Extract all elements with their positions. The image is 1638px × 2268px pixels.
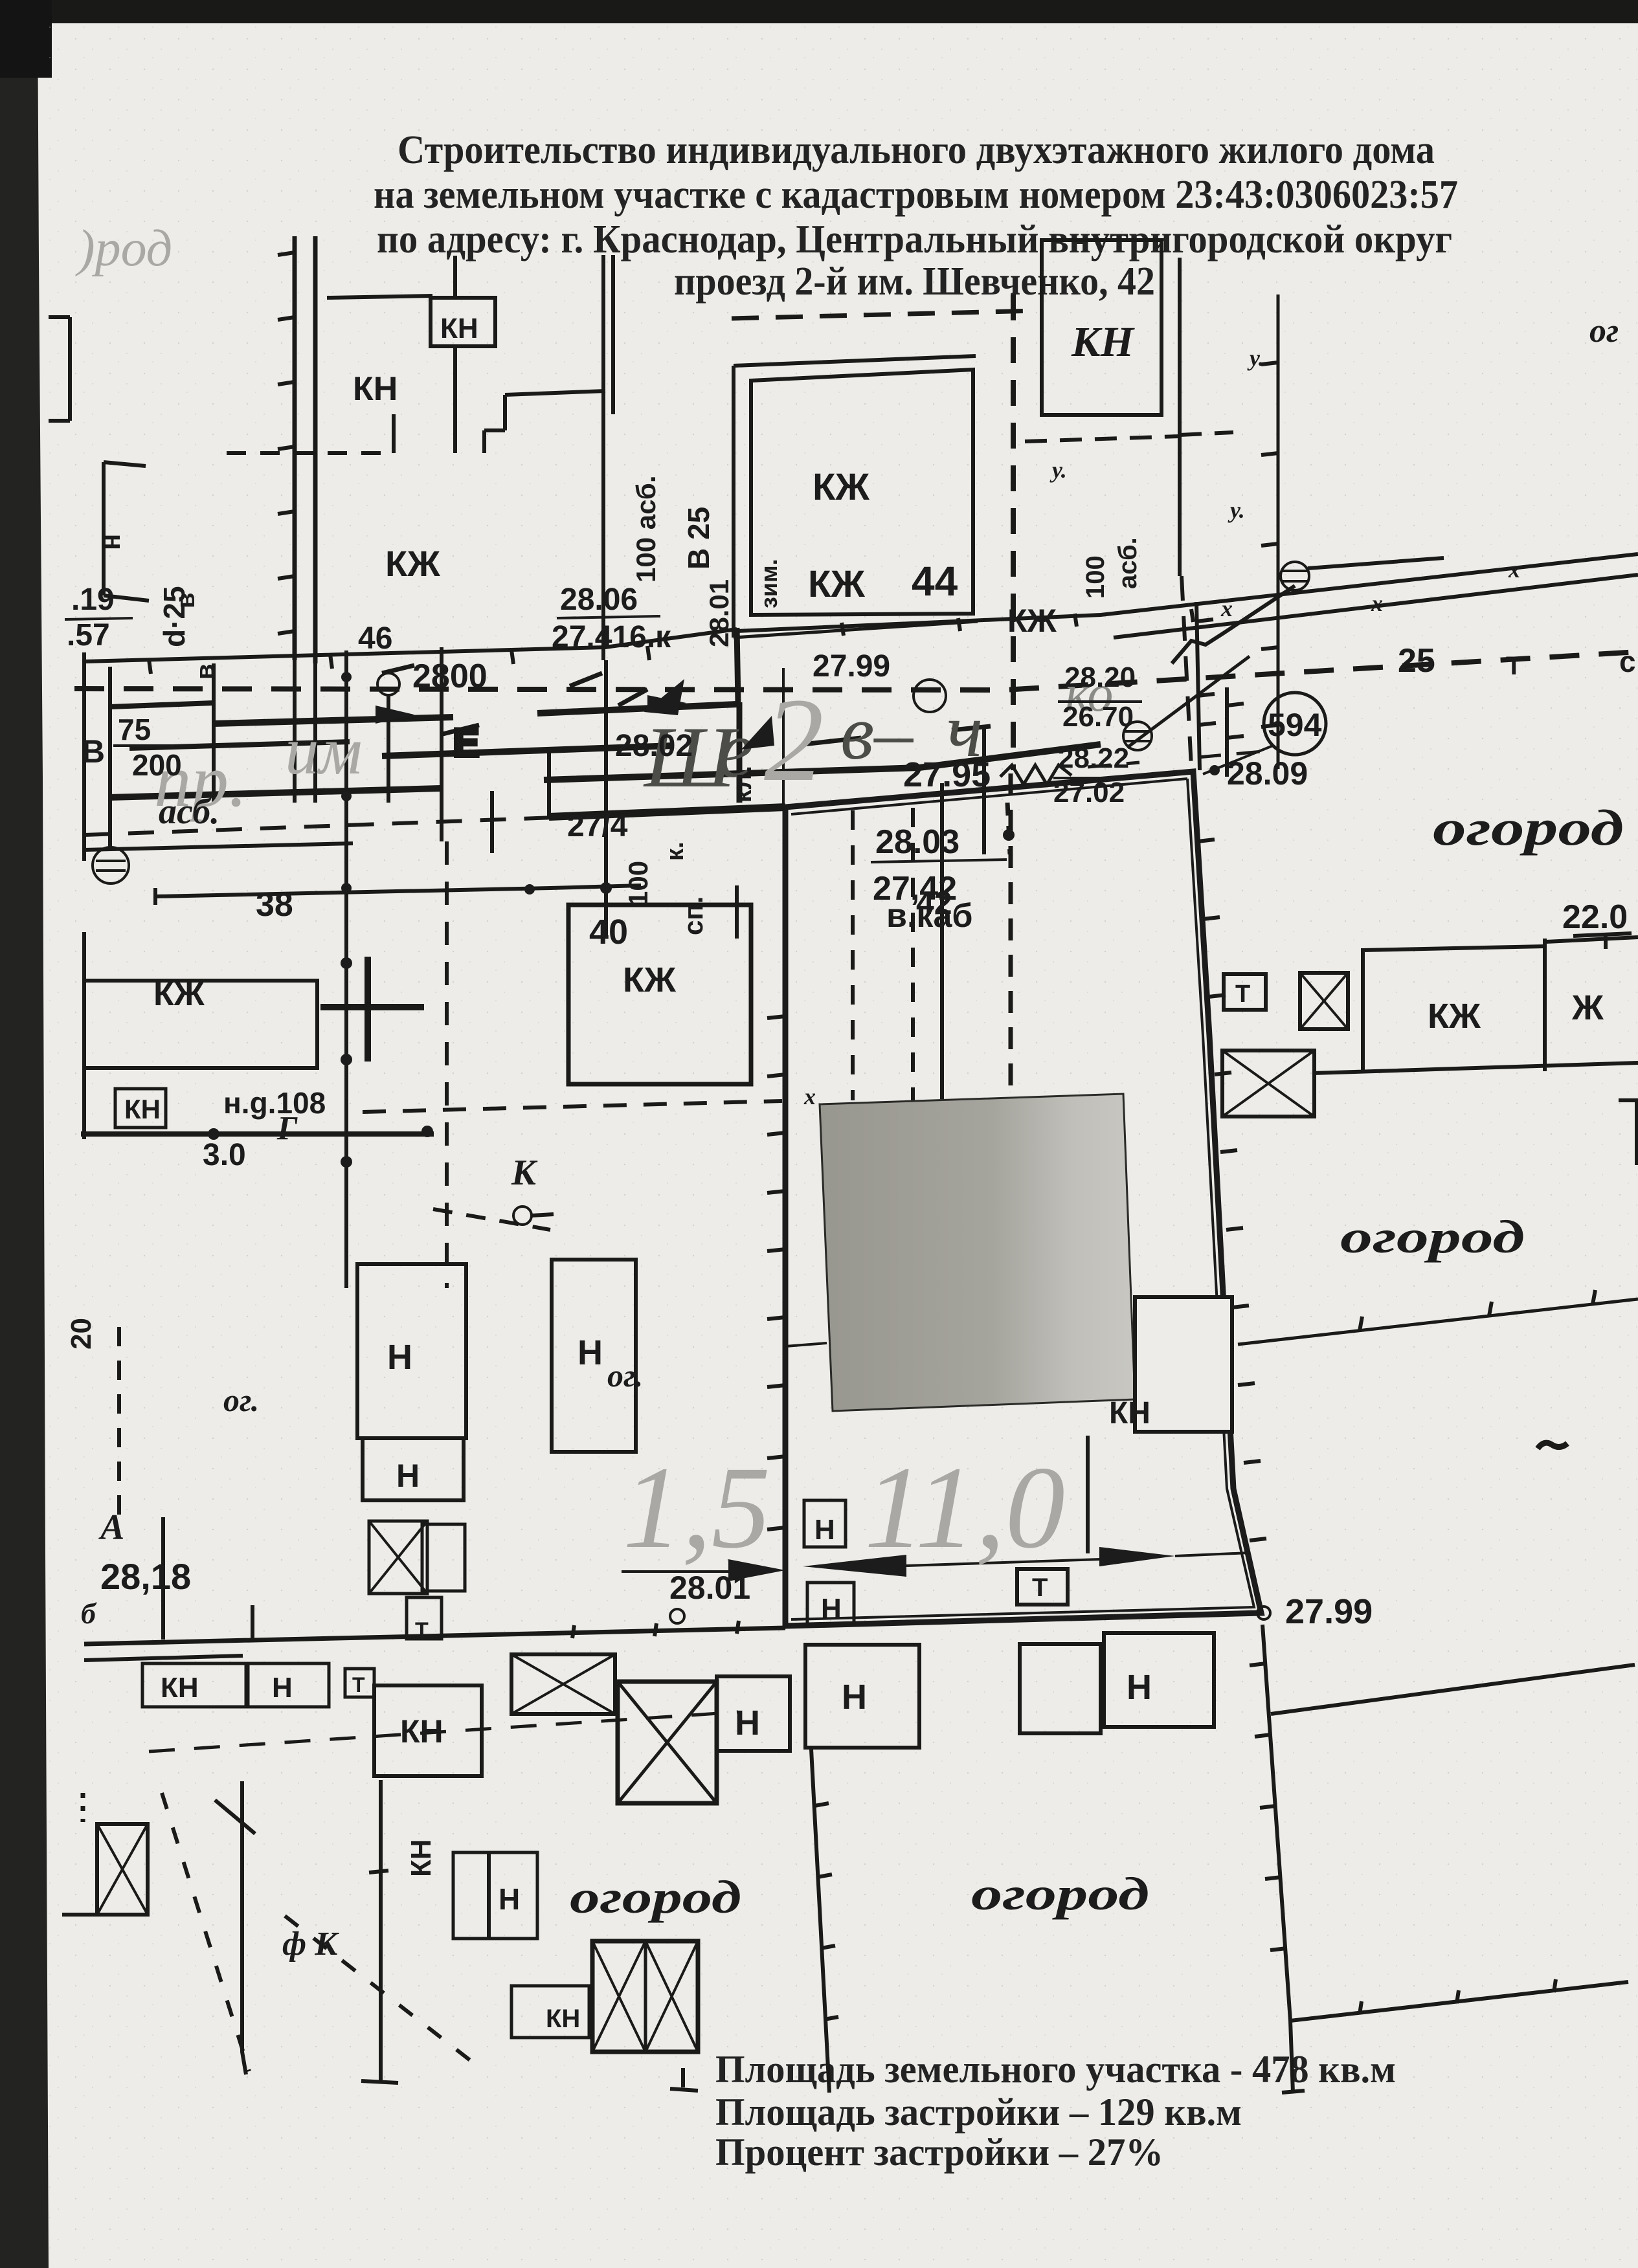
- svg-text:х: х: [1220, 595, 1233, 621]
- svg-text:КН: КН: [405, 1839, 437, 1877]
- svg-text:Н: Н: [814, 1514, 835, 1546]
- svg-text:Н: Н: [499, 1882, 520, 1916]
- svg-text:Площадь застройки – 129 кв.м: Площадь застройки – 129 кв.м: [715, 2091, 1242, 2133]
- svg-text:х: х: [1371, 590, 1383, 616]
- svg-text:проезд 2-й им. Шевченко, 42: проезд 2-й им. Шевченко, 42: [674, 260, 1155, 304]
- svg-text:27.95: 27.95: [903, 755, 991, 794]
- svg-text:100 асб.: 100 асб.: [631, 475, 661, 583]
- svg-text:1,5: 1,5: [623, 1443, 770, 1573]
- svg-text:Н: Н: [396, 1458, 420, 1494]
- svg-text:кл.: кл.: [728, 766, 757, 803]
- svg-text:Н: Н: [821, 1593, 842, 1625]
- svg-text:В: В: [82, 733, 105, 770]
- svg-text:Т: Т: [415, 1618, 429, 1643]
- svg-text:38: 38: [256, 886, 293, 924]
- svg-text:594: 594: [1268, 707, 1322, 743]
- svg-text:б: б: [81, 1597, 97, 1630]
- svg-text:Н: Н: [735, 1704, 760, 1742]
- svg-text:КЖ: КЖ: [385, 543, 440, 584]
- svg-text:28.02: 28.02: [615, 729, 693, 763]
- svg-text:Т: Т: [1235, 981, 1250, 1008]
- svg-text:28.06: 28.06: [560, 583, 638, 617]
- svg-text:КЖ: КЖ: [1428, 997, 1481, 1036]
- svg-text:28,18: 28,18: [100, 1556, 191, 1597]
- svg-text:44: 44: [912, 558, 958, 605]
- svg-text:КН: КН: [1109, 1396, 1150, 1430]
- svg-text:КН: КН: [546, 2005, 580, 2033]
- svg-text:ог.: ог.: [223, 1382, 259, 1418]
- svg-text:в: в: [172, 592, 200, 608]
- svg-text:27.99: 27.99: [813, 649, 890, 684]
- svg-text:ф К: ф К: [282, 1926, 339, 1962]
- svg-text:огород: огород: [971, 1868, 1149, 1920]
- svg-text:28.22: 28.22: [1058, 742, 1129, 774]
- svg-text:КН: КН: [353, 370, 398, 408]
- svg-text:х: х: [803, 1084, 816, 1109]
- svg-text:26.70: 26.70: [1062, 701, 1134, 733]
- svg-text:.57: .57: [67, 618, 110, 652]
- svg-text:27.02: 27.02: [1053, 777, 1125, 808]
- svg-text:Т: Т: [1032, 1573, 1048, 1602]
- svg-text:КН: КН: [1071, 318, 1136, 366]
- svg-text:11,0: 11,0: [864, 1443, 1065, 1573]
- svg-text:)род: )род: [75, 220, 172, 277]
- svg-text:КЖ: КЖ: [813, 466, 869, 508]
- svg-text:КЖ: КЖ: [623, 961, 677, 999]
- svg-text:КЖ: КЖ: [153, 975, 205, 1013]
- svg-text:46: 46: [358, 621, 392, 656]
- svg-text:К: К: [511, 1153, 538, 1193]
- svg-text:в: в: [191, 663, 219, 680]
- svg-text:40: 40: [589, 913, 628, 951]
- svg-text:Процент застройки – 27%: Процент застройки – 27%: [715, 2131, 1163, 2173]
- svg-text:с: с: [1619, 645, 1636, 678]
- svg-text:огород: огород: [570, 1871, 741, 1923]
- svg-text:42: 42: [916, 885, 952, 921]
- svg-text:н.g.108: н.g.108: [223, 1086, 326, 1120]
- svg-text:асб.: асб.: [1114, 537, 1142, 589]
- svg-text:Т: Т: [1506, 652, 1521, 680]
- svg-text:Н: Н: [387, 1338, 412, 1377]
- svg-text:28.20: 28.20: [1064, 661, 1136, 693]
- svg-text:Е: Е: [453, 721, 479, 764]
- svg-text:у.: у.: [1049, 457, 1067, 483]
- svg-text:им: им: [285, 713, 363, 788]
- svg-text:28.03: 28.03: [875, 823, 959, 861]
- svg-text:100: 100: [623, 861, 653, 906]
- svg-text:27/4: 27/4: [567, 809, 628, 843]
- svg-text:В 25: В 25: [682, 507, 715, 570]
- svg-text:2800: 2800: [412, 658, 488, 695]
- svg-text:27.99: 27.99: [1285, 1592, 1373, 1631]
- svg-text:20: 20: [65, 1318, 97, 1350]
- svg-text:Н: Н: [578, 1333, 603, 1372]
- svg-text:25: 25: [1398, 642, 1435, 680]
- svg-text:Ж: Ж: [1571, 988, 1604, 1027]
- svg-text:А: А: [98, 1507, 124, 1548]
- svg-text:асб.: асб.: [159, 792, 219, 832]
- svg-text:28.01: 28.01: [704, 579, 734, 647]
- svg-text:22.0: 22.0: [1562, 898, 1628, 936]
- svg-text:28.01: 28.01: [669, 1570, 750, 1606]
- svg-text:Т: Т: [352, 1673, 365, 1696]
- svg-text:ог.: ог.: [607, 1357, 643, 1394]
- svg-text:КЖ: КЖ: [808, 563, 865, 605]
- svg-text:ог: ог: [1589, 313, 1619, 350]
- svg-text:по адресу: г. Краснодар, Центр: по адресу: г. Краснодар, Центральный вну…: [377, 217, 1452, 261]
- svg-text:КН: КН: [440, 313, 478, 344]
- svg-text:КН: КН: [124, 1094, 161, 1124]
- svg-text:зим.: зим.: [756, 559, 782, 608]
- svg-text:огород: огород: [1340, 1211, 1525, 1263]
- svg-text:сп.: сп.: [678, 896, 708, 935]
- svg-text:100: 100: [1081, 555, 1110, 599]
- svg-text:к.: к.: [662, 841, 689, 861]
- svg-text:огород: огород: [1433, 799, 1624, 856]
- svg-text:Н: Н: [272, 1672, 293, 1704]
- svg-text:КН: КН: [400, 1713, 443, 1750]
- svg-text:Строительство индивидуального: Строительство индивидуального двухэтажно…: [398, 128, 1435, 172]
- svg-text:у.: у.: [1247, 345, 1264, 371]
- svg-text:х: х: [1508, 557, 1520, 583]
- svg-text:КЖ: КЖ: [1007, 603, 1057, 639]
- svg-text:3.0: 3.0: [203, 1138, 246, 1172]
- svg-text:у.: у.: [1228, 497, 1245, 523]
- svg-text:КН: КН: [161, 1672, 199, 1704]
- svg-text:Н: Н: [1127, 1668, 1152, 1707]
- svg-text:.19: .19: [71, 583, 115, 617]
- svg-text:н: н: [95, 534, 126, 550]
- svg-text:на земельном участке с кадастр: на земельном участке с кадастровым номер…: [374, 173, 1458, 217]
- svg-text:Н: Н: [842, 1678, 867, 1717]
- svg-text:27.416.к: 27.416.к: [552, 620, 671, 654]
- svg-text:200: 200: [132, 748, 182, 782]
- svg-text:28.09: 28.09: [1227, 755, 1308, 792]
- svg-text:75: 75: [118, 713, 151, 746]
